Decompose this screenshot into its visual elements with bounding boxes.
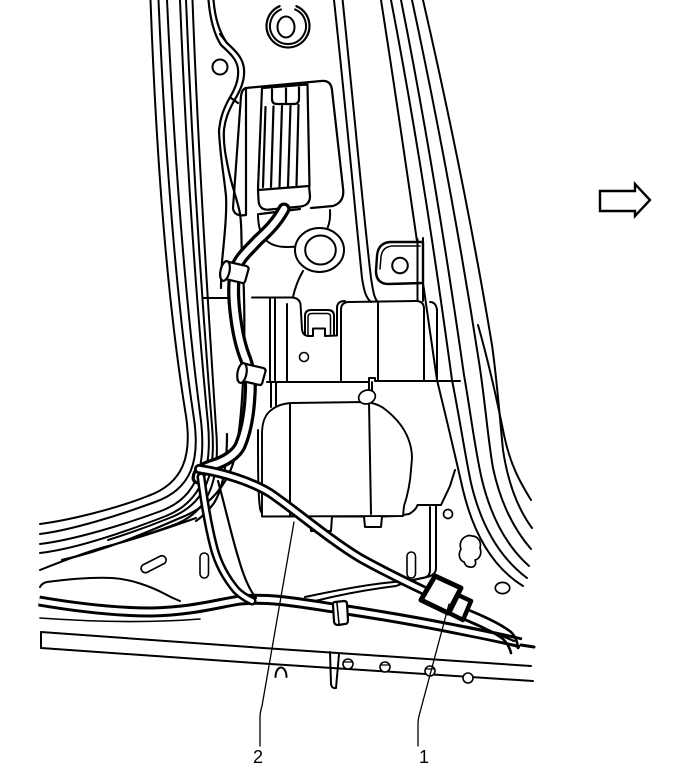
svg-text:1: 1: [419, 747, 429, 767]
svg-text:2: 2: [253, 747, 263, 767]
